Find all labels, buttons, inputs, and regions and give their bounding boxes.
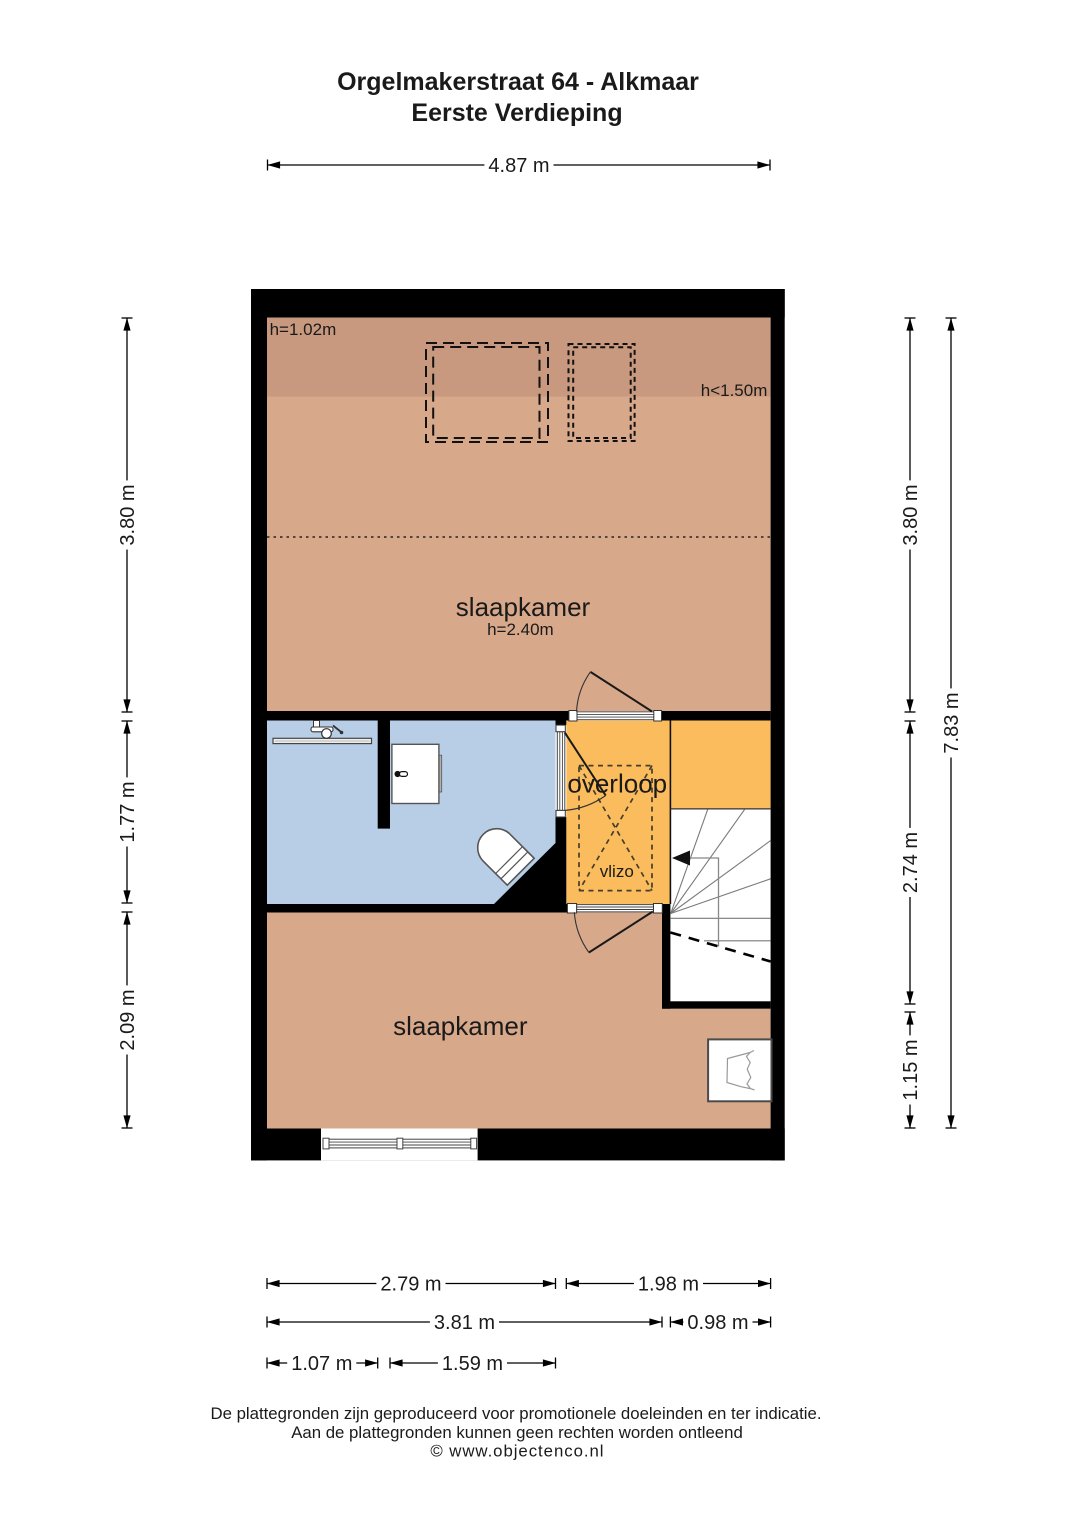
svg-text:1.98 m: 1.98 m xyxy=(638,1274,699,1296)
svg-text:1.07 m: 1.07 m xyxy=(291,1353,352,1375)
svg-text:© www.objectenco.nl: © www.objectenco.nl xyxy=(430,1442,604,1461)
svg-text:4.87 m: 4.87 m xyxy=(488,155,549,177)
svg-text:vlizo: vlizo xyxy=(600,862,634,881)
svg-text:3.81 m: 3.81 m xyxy=(434,1312,495,1334)
svg-text:3.80 m: 3.80 m xyxy=(117,484,139,545)
svg-text:3.80 m: 3.80 m xyxy=(900,484,922,545)
svg-text:h<1.50m: h<1.50m xyxy=(701,381,768,400)
svg-text:1.15 m: 1.15 m xyxy=(900,1039,922,1100)
svg-text:2.09 m: 2.09 m xyxy=(117,989,139,1050)
svg-text:slaapkamer: slaapkamer xyxy=(456,592,591,622)
svg-text:Eerste Verdieping: Eerste Verdieping xyxy=(411,99,622,127)
svg-text:7.83 m: 7.83 m xyxy=(941,692,963,753)
svg-text:1.59 m: 1.59 m xyxy=(442,1353,503,1375)
svg-text:h=1.02m: h=1.02m xyxy=(270,320,337,339)
svg-text:Orgelmakerstraat 64 - Alkmaar: Orgelmakerstraat 64 - Alkmaar xyxy=(337,68,699,96)
svg-text:slaapkamer: slaapkamer xyxy=(393,1011,528,1041)
svg-text:h=2.40m: h=2.40m xyxy=(487,620,554,639)
svg-text:overloop: overloop xyxy=(567,769,667,799)
svg-text:0.98 m: 0.98 m xyxy=(687,1312,748,1334)
svg-text:Aan de plattegronden kunnen ge: Aan de plattegronden kunnen geen rechten… xyxy=(291,1423,743,1442)
svg-text:2.74 m: 2.74 m xyxy=(900,832,922,893)
svg-text:1.77 m: 1.77 m xyxy=(117,781,139,842)
svg-text:De plattegronden zijn geproduc: De plattegronden zijn geproduceerd voor … xyxy=(210,1404,821,1423)
svg-text:2.79 m: 2.79 m xyxy=(380,1274,441,1296)
